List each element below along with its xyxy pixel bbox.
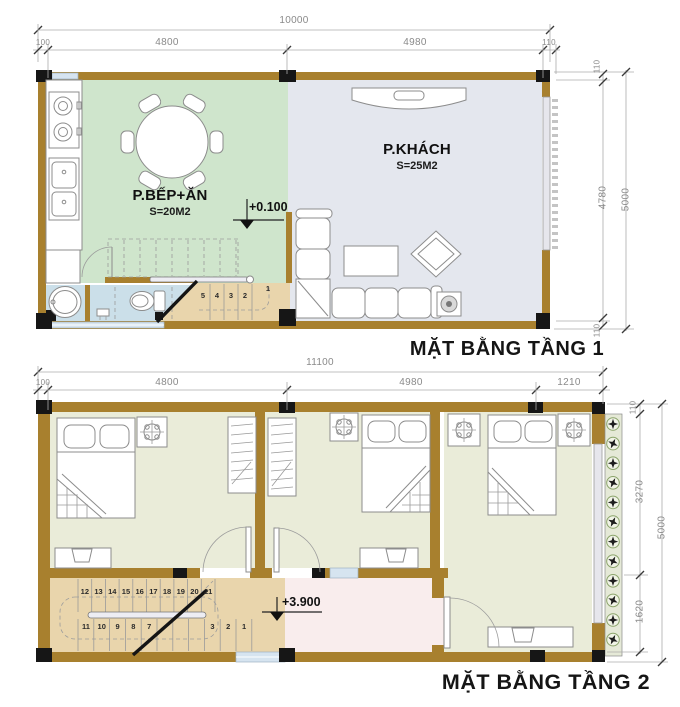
stair-step-number: 17 bbox=[147, 588, 161, 596]
plant-icon bbox=[607, 457, 620, 470]
stair-step-number: 2 bbox=[238, 292, 252, 300]
dim-right-inner-f1: 4780 bbox=[598, 176, 609, 220]
stair-step-number: 9 bbox=[110, 623, 126, 631]
floor-fan bbox=[437, 292, 461, 316]
dim-right-wall-f1: 110 bbox=[529, 39, 569, 48]
bed-1 bbox=[57, 418, 135, 518]
ceiling-fan-bed3-left bbox=[448, 414, 480, 446]
dim-right-total-f2: 5000 bbox=[657, 506, 668, 550]
stove bbox=[49, 92, 81, 148]
dim-seg2-f2: 4980 bbox=[361, 377, 461, 388]
dim-top-total-f2: 11100 bbox=[270, 357, 370, 368]
bed-2 bbox=[362, 415, 430, 512]
stair-step-number: 5 bbox=[196, 292, 210, 300]
kitchen-sink bbox=[49, 158, 79, 220]
stair-step-number: 8 bbox=[125, 623, 141, 631]
plant-icon bbox=[607, 496, 620, 509]
stair-step-number: 16 bbox=[133, 588, 147, 596]
dim-right-seg1-f2: 3270 bbox=[635, 470, 646, 514]
wardrobe-bed2 bbox=[268, 418, 296, 496]
stair-numbers-f1: 5432 bbox=[196, 292, 252, 300]
stair-step-number: 3 bbox=[205, 623, 221, 631]
dim-living-width: 4980 bbox=[365, 37, 465, 48]
plant-icon bbox=[607, 575, 620, 588]
stair-step-number: 13 bbox=[92, 588, 106, 596]
dim-right-small-top-f1: 110 bbox=[594, 44, 603, 88]
kitchen-room-label: P.BẾP+ĂN bbox=[95, 188, 245, 205]
stair-step-number: 15 bbox=[119, 588, 133, 596]
plant-icon bbox=[607, 535, 620, 548]
stair-numbers-upper-f2: 12131415161718192021 bbox=[78, 588, 215, 596]
bathtub bbox=[49, 287, 81, 318]
kitchen-area-label: S=20M2 bbox=[95, 206, 245, 218]
stair-step-number: 12 bbox=[78, 588, 92, 596]
stair-step-number bbox=[173, 623, 189, 631]
ceiling-fan-bed3-right bbox=[558, 414, 590, 446]
stair-step-number: 3 bbox=[224, 292, 238, 300]
floor1-title: MẶT BẰNG TẦNG 1 bbox=[392, 337, 622, 361]
stair-step-number: 7 bbox=[141, 623, 157, 631]
desk-bed2 bbox=[360, 548, 418, 568]
stair-step-number: 2 bbox=[220, 623, 236, 631]
floor1-glass-door bbox=[543, 97, 555, 250]
dim-right-total-f1: 5000 bbox=[621, 178, 632, 222]
dim-top-total-f1: 10000 bbox=[244, 15, 344, 26]
desk-bed3 bbox=[488, 627, 573, 647]
stair-step-number: 1 bbox=[236, 623, 252, 631]
stair-numbers-lower-f2: 1110987321 bbox=[78, 623, 252, 631]
stair-step-number: 21 bbox=[201, 588, 215, 596]
balcony-planter bbox=[605, 414, 622, 656]
ceiling-fan-bed1 bbox=[137, 417, 167, 447]
floor2-title: MẶT BẰNG TẦNG 2 bbox=[416, 670, 676, 696]
living-room-label: P.KHÁCH bbox=[342, 142, 492, 159]
stair-step-number: 14 bbox=[105, 588, 119, 596]
plant-icon bbox=[607, 614, 620, 627]
stair-step-number: 18 bbox=[160, 588, 174, 596]
dim-left-wall-f1: 100 bbox=[23, 39, 63, 48]
bed-3 bbox=[488, 415, 556, 515]
dim-seg3-f2: 1210 bbox=[529, 377, 609, 388]
desk-bed1 bbox=[55, 548, 111, 568]
dim-seg1-f2: 4800 bbox=[117, 377, 217, 388]
dim-left-wall-f2: 100 bbox=[23, 379, 63, 388]
stair-step-number bbox=[157, 623, 173, 631]
stair-landing-number-f1: 1 bbox=[262, 285, 274, 293]
stair-step-number: 20 bbox=[188, 588, 202, 596]
plant-icon bbox=[607, 418, 620, 431]
level-mark-f1: +0.100 bbox=[249, 201, 288, 215]
stair-step-number: 4 bbox=[210, 292, 224, 300]
stair-step-number: 11 bbox=[78, 623, 94, 631]
ceiling-fan-bed2 bbox=[330, 413, 358, 441]
dim-kitchen-width: 4800 bbox=[117, 37, 217, 48]
stair-step-number: 10 bbox=[94, 623, 110, 631]
living-area-label: S=25M2 bbox=[342, 160, 492, 172]
stair-step-number: 19 bbox=[174, 588, 188, 596]
dim-right-small-top-f2: 110 bbox=[630, 385, 639, 429]
stair-step-number bbox=[189, 623, 205, 631]
coffee-table bbox=[344, 246, 398, 276]
level-mark-f2: +3.900 bbox=[282, 596, 321, 610]
dim-right-seg2-f2: 1620 bbox=[635, 590, 646, 634]
wardrobe-bed1 bbox=[228, 417, 256, 493]
blueprint-page: 10000 100 4800 4980 110 110 4780 110 500… bbox=[0, 0, 680, 707]
